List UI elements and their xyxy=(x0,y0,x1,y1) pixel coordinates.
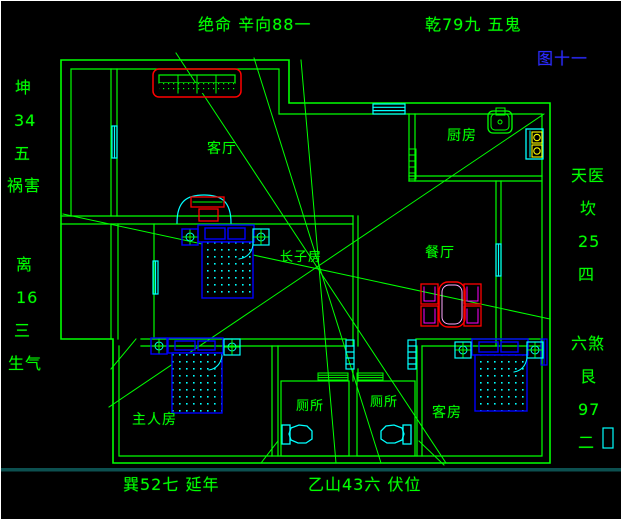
annotation-bottom-left: 巽52七 延年 xyxy=(123,477,219,493)
nightstand-lamp xyxy=(151,338,167,354)
annotation-left-lower-3: 三 xyxy=(14,323,31,339)
bed-guest xyxy=(472,339,528,411)
annotation-right-upper-2: 坎 xyxy=(580,201,597,217)
annotation-left-upper-3: 五 xyxy=(14,146,31,162)
bed-eldest-son xyxy=(198,225,254,298)
window-dining xyxy=(496,244,501,276)
annotation-left-upper-1: 坤 xyxy=(15,80,32,96)
annotation-top-right: 乾79九 五鬼 xyxy=(425,17,521,33)
nightstand-lamp xyxy=(455,342,471,358)
annotation-left-lower-2: 16 xyxy=(16,290,38,306)
window-top xyxy=(373,104,405,114)
room-label-master: 主人房 xyxy=(132,413,177,427)
room-label-guest: 客房 xyxy=(432,406,462,420)
nightstand-lamp xyxy=(253,229,269,245)
bed-master xyxy=(168,338,223,413)
sofa xyxy=(153,69,241,97)
room-label-dining: 餐厅 xyxy=(425,246,455,260)
bottom-band xyxy=(1,468,621,472)
annotation-right-lower-4: 二 xyxy=(578,435,595,451)
annotation-right-upper-1: 天医 xyxy=(571,168,605,184)
figure-number-label: 图十一 xyxy=(537,51,588,67)
annotation-top-left: 绝命 辛向88一 xyxy=(198,17,311,33)
annotation-left-upper-2: 34 xyxy=(14,113,36,129)
vent-toilet-right xyxy=(357,373,383,380)
tv-cabinet xyxy=(177,195,231,223)
vent-toilet-left xyxy=(318,373,348,380)
annotation-right-lower-2: 艮 xyxy=(580,369,597,385)
toilet-right xyxy=(381,425,411,444)
annotation-right-lower-1: 六煞 xyxy=(571,336,605,352)
window-living-left xyxy=(112,126,117,158)
annotation-right-upper-4: 四 xyxy=(578,267,595,283)
cad-floorplan-canvas[interactable]: 绝命 辛向88一 乾79九 五鬼 图十一 巽52七 延年 乙山43六 伏位 坤 … xyxy=(0,0,621,520)
room-label-eldest-son: 长子房 xyxy=(280,251,322,264)
annotation-left-upper-4: 祸害 xyxy=(7,178,41,194)
toilet-left xyxy=(282,425,312,444)
dining-table xyxy=(421,282,481,327)
room-label-kitchen: 厨房 xyxy=(447,129,477,143)
shaft-hatch-right xyxy=(408,340,416,369)
annotation-left-lower-4: 生气 xyxy=(8,356,42,372)
vent-hatches-green xyxy=(318,149,416,380)
room-label-toilet-right: 厕所 xyxy=(370,396,398,409)
annotation-right-lower-3: 97 xyxy=(578,402,600,418)
annotation-left-lower-1: 离 xyxy=(16,257,33,273)
dining-chair xyxy=(421,284,481,326)
window-margin-mark xyxy=(603,428,613,448)
kitchen-stove xyxy=(526,129,543,159)
room-label-toilet-left: 厕所 xyxy=(296,400,324,413)
annotation-right-upper-3: 25 xyxy=(578,234,600,250)
kitchen-sink xyxy=(488,108,512,133)
annotation-bottom-right: 乙山43六 伏位 xyxy=(308,477,421,493)
nightstand-lamp xyxy=(224,339,240,355)
room-label-living: 客厅 xyxy=(207,142,237,156)
